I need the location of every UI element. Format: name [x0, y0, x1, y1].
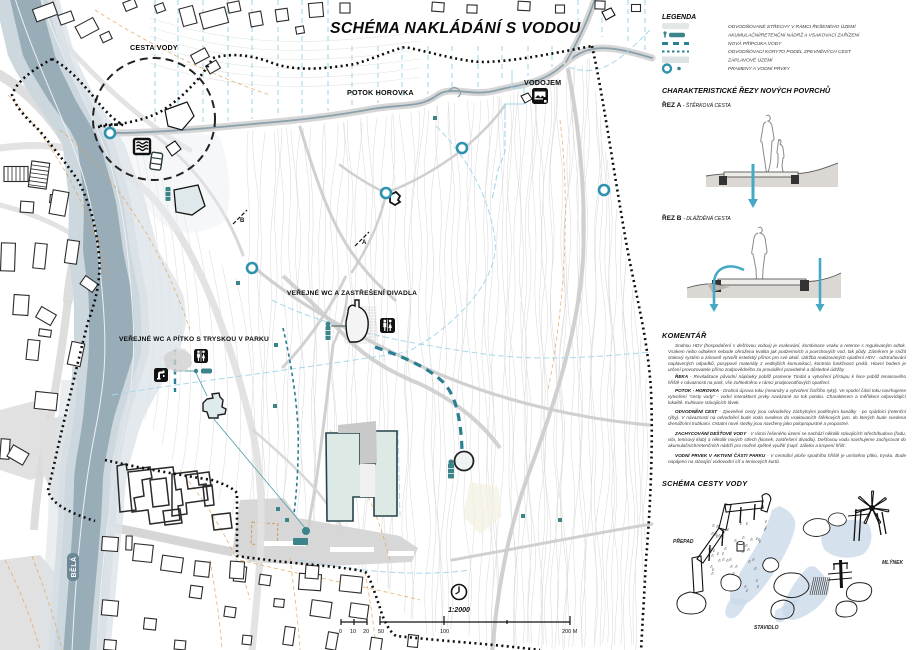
svg-text:1:2000: 1:2000 — [448, 607, 470, 614]
svg-text:10: 10 — [350, 629, 356, 635]
svg-text:A: A — [362, 240, 367, 246]
svg-text:POTOK HOROVKA: POTOK HOROVKA — [347, 88, 414, 97]
svg-text:50: 50 — [378, 629, 384, 635]
svg-text:VODOJEM: VODOJEM — [524, 78, 561, 87]
svg-text:PŘEPAD: PŘEPAD — [673, 537, 694, 545]
svg-text:STAVIDLO: STAVIDLO — [754, 625, 779, 631]
svg-text:100: 100 — [440, 629, 449, 635]
svg-text:MLÝNEK: MLÝNEK — [882, 559, 904, 566]
svg-text:CHARAKTERISTICKÉ ŘEZY NOVÝCH P: CHARAKTERISTICKÉ ŘEZY NOVÝCH POVRCHŮ — [662, 85, 831, 95]
svg-text:CESTA VODY: CESTA VODY — [130, 43, 178, 52]
svg-text:SCHÉMA NAKLÁDÁNÍ S VODOU: SCHÉMA NAKLÁDÁNÍ S VODOU — [330, 18, 581, 37]
svg-text:SCHÉMA CESTY VODY: SCHÉMA CESTY VODY — [662, 479, 748, 488]
svg-text:20: 20 — [363, 629, 369, 635]
svg-text:KOMENTÁŘ: KOMENTÁŘ — [662, 331, 707, 340]
svg-text:B: B — [240, 218, 245, 224]
svg-text:0: 0 — [339, 629, 342, 635]
svg-text:VEŘEJNÉ WC A ZASTŘEŠENÍ DIVADL: VEŘEJNÉ WC A ZASTŘEŠENÍ DIVADLA — [287, 288, 417, 297]
svg-text:PRAMENY A VODNÍ PRVKY: PRAMENY A VODNÍ PRVKY — [728, 65, 791, 72]
svg-text:VEŘEJNÉ WC A PÍTKO S TRYSKOU V: VEŘEJNÉ WC A PÍTKO S TRYSKOU V PARKU — [119, 334, 269, 343]
svg-text:BĚLÁ: BĚLÁ — [69, 556, 78, 577]
svg-text:LEGENDA: LEGENDA — [662, 14, 696, 21]
svg-text:ZÁPLAVOVÉ ÚZEMÍ: ZÁPLAVOVÉ ÚZEMÍ — [727, 57, 773, 64]
svg-text:200 M: 200 M — [562, 629, 578, 635]
